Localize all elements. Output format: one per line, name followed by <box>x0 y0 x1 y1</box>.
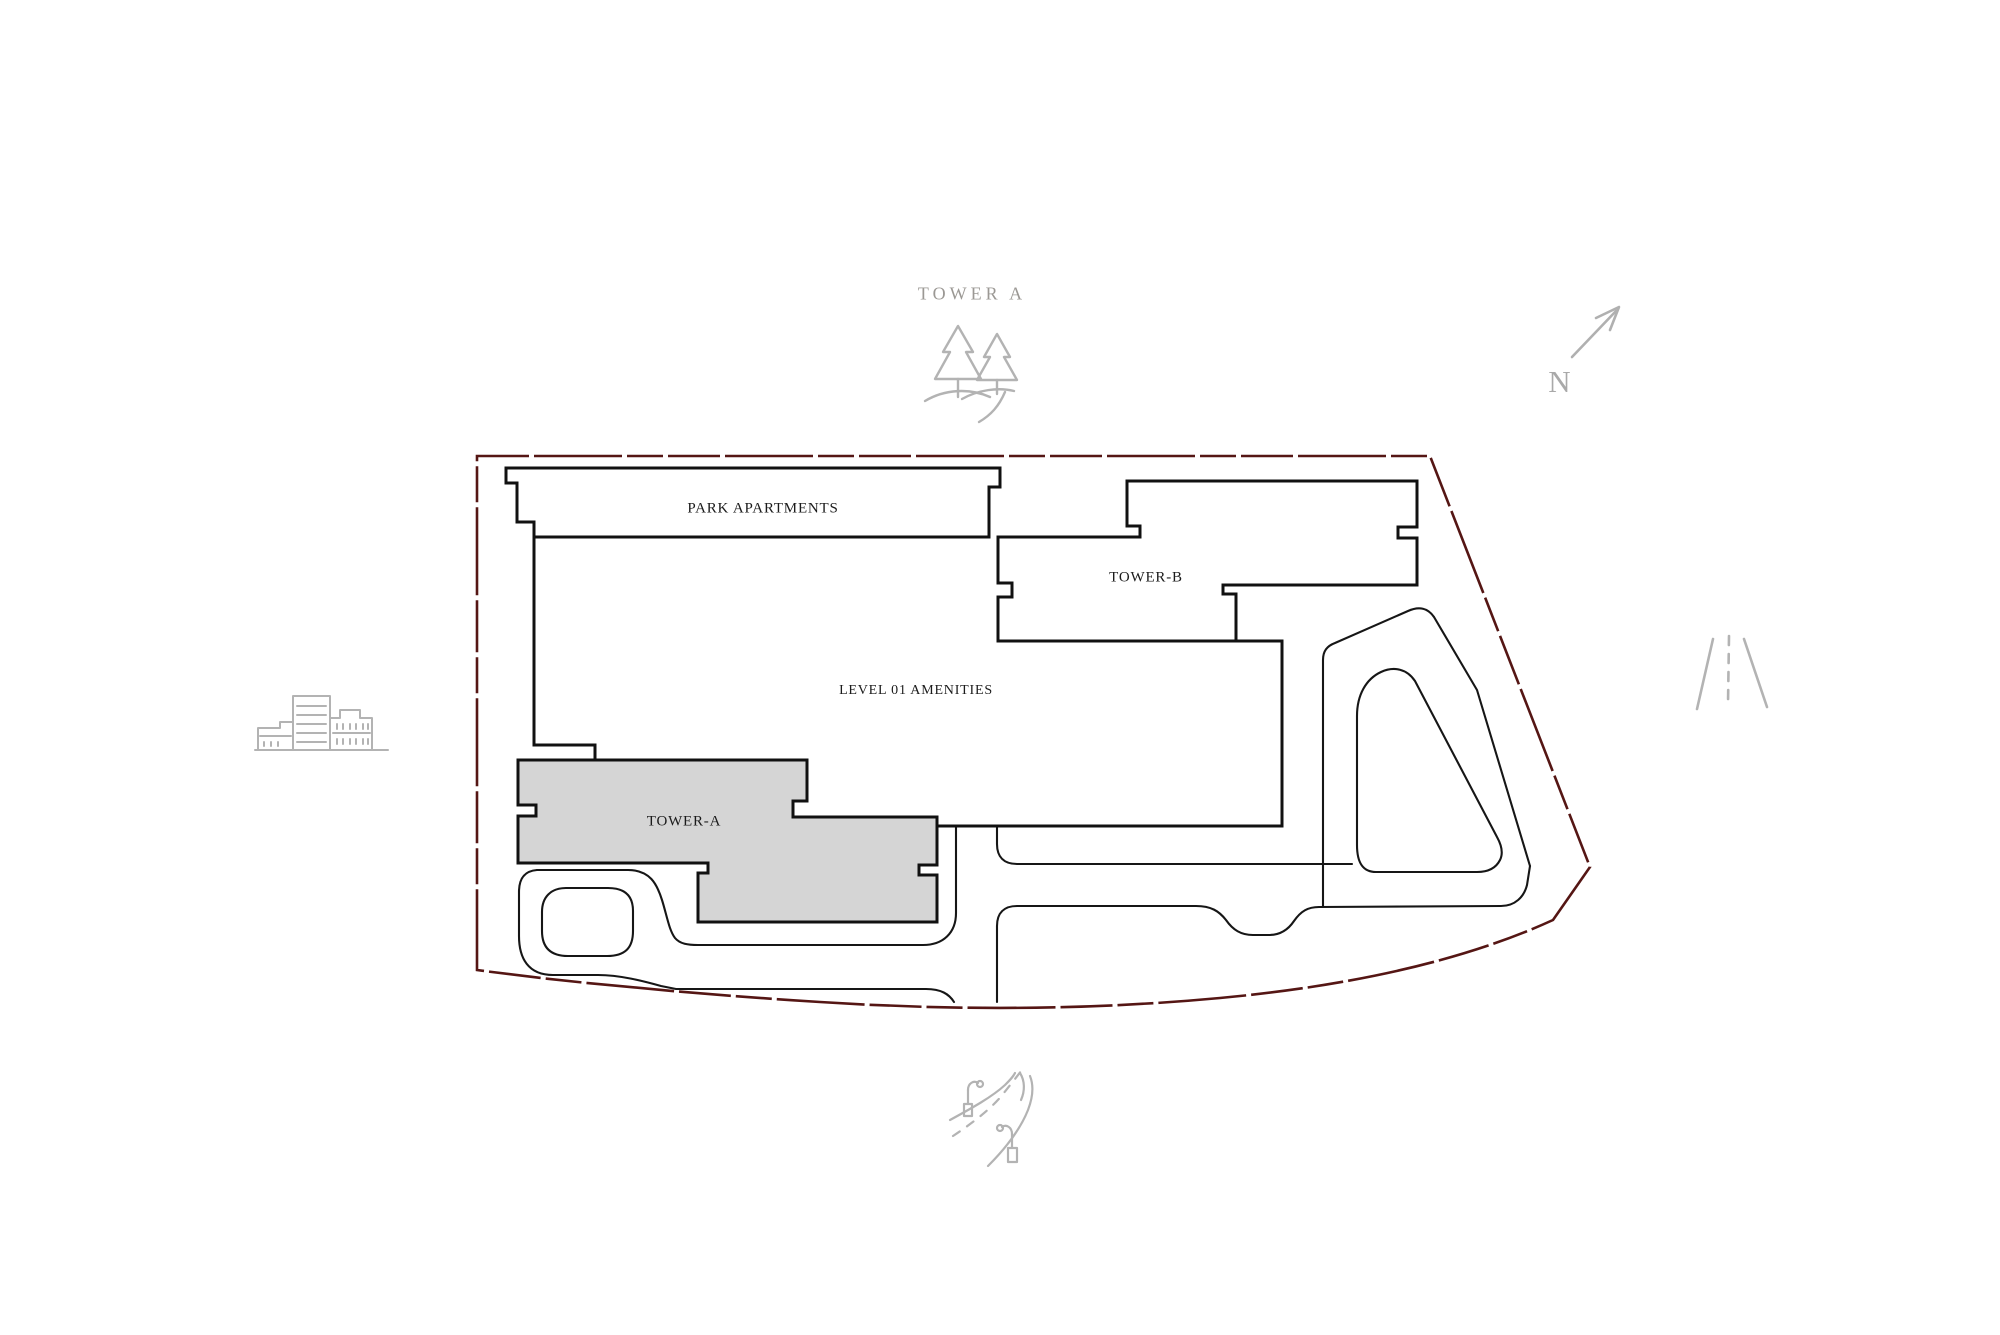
site-plan-page: TOWER A N PARK APARTMENTS TOWER-B LEVEL … <box>0 0 2000 1335</box>
north-label: N <box>1548 364 1571 400</box>
road-perspective-icon <box>1697 636 1767 709</box>
tower-a-building[interactable] <box>518 760 937 922</box>
trees-icon <box>925 326 1017 422</box>
road-loop-island <box>542 888 633 956</box>
tower-b-building[interactable] <box>998 481 1417 641</box>
north-arrow-icon <box>1572 307 1619 357</box>
road-east-lower-edge <box>997 866 1530 1002</box>
page-title: TOWER A <box>918 284 1026 305</box>
site-plan-drawing <box>0 0 2000 1335</box>
road-east-upper-edge <box>997 826 1352 864</box>
amenities-label: LEVEL 01 AMENITIES <box>839 683 993 699</box>
tower-b-label: TOWER-B <box>1109 570 1183 587</box>
tower-a-label: TOWER-A <box>647 814 721 831</box>
park-apartments-label: PARK APARTMENTS <box>687 501 838 518</box>
city-buildings-icon <box>255 696 388 750</box>
road-curve-icon <box>950 1071 1032 1166</box>
